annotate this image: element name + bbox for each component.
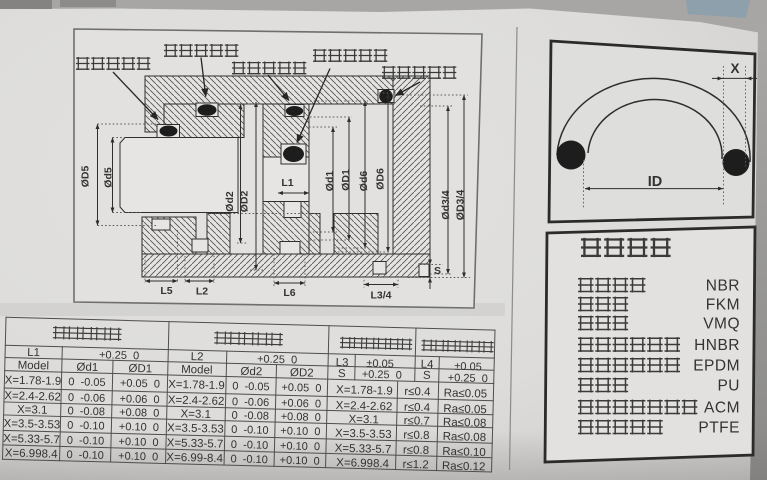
svg-text:0 -0.05: 0 -0.05 — [68, 376, 106, 389]
svg-text:L1: L1 — [27, 347, 40, 359]
svg-text:NBR: NBR — [706, 278, 740, 295]
svg-text:Ra≤0.05: Ra≤0.05 — [444, 387, 488, 400]
svg-text:PTFE: PTFE — [698, 420, 740, 437]
svg-text:r≤0.8: r≤0.8 — [403, 429, 429, 442]
svg-text:EPDM: EPDM — [693, 358, 740, 375]
svg-text:+0.06 0: +0.06 0 — [281, 397, 321, 410]
svg-text:r≤0.4: r≤0.4 — [404, 402, 431, 415]
svg-text:ØD2: ØD2 — [239, 191, 251, 213]
svg-text:X=6.998.4: X=6.998.4 — [336, 457, 390, 470]
svg-text:0 -0.06: 0 -0.06 — [232, 396, 270, 409]
svg-text:S: S — [423, 370, 431, 382]
svg-text:r≤0.7: r≤0.7 — [404, 415, 430, 428]
svg-text:ØD3/4: ØD3/4 — [455, 190, 467, 221]
svg-text:+0.05 0: +0.05 0 — [281, 382, 321, 395]
svg-text:0 -0.10: 0 -0.10 — [231, 439, 269, 452]
svg-text:0 -0.10: 0 -0.10 — [231, 424, 269, 437]
svg-text:X: X — [730, 61, 739, 76]
svg-text:X=1.78-1.9: X=1.78-1.9 — [5, 374, 62, 387]
svg-text:Ød2: Ød2 — [224, 191, 236, 212]
svg-text:Model: Model — [18, 360, 50, 373]
svg-text:0 -0.10: 0 -0.10 — [67, 420, 105, 433]
svg-text:X=3.5-3.53: X=3.5-3.53 — [167, 422, 224, 435]
svg-text:X=3.5-3.53: X=3.5-3.53 — [3, 418, 60, 431]
svg-text:HNBR: HNBR — [694, 337, 740, 354]
svg-text:X=6.998.4: X=6.998.4 — [5, 447, 59, 460]
svg-text:ACM: ACM — [704, 400, 740, 417]
svg-text:+0.08 0: +0.08 0 — [119, 407, 159, 420]
svg-text:Ød3/4: Ød3/4 — [440, 190, 452, 219]
svg-text:Model: Model — [181, 364, 213, 377]
svg-text:X=3.1: X=3.1 — [180, 408, 211, 421]
svg-text:X=2.4-2.62: X=2.4-2.62 — [4, 390, 61, 403]
svg-text:PU: PU — [717, 378, 740, 395]
svg-text:ØD6: ØD6 — [375, 168, 387, 190]
svg-text:X=1.78-1.9: X=1.78-1.9 — [168, 379, 225, 392]
svg-text:X=2.4-2.62: X=2.4-2.62 — [168, 394, 225, 407]
svg-text:0 -0.06: 0 -0.06 — [68, 392, 106, 405]
svg-text:0 -0.08: 0 -0.08 — [231, 410, 269, 423]
svg-text:ØD1: ØD1 — [340, 169, 352, 191]
svg-text:+0.06 0: +0.06 0 — [119, 393, 159, 406]
svg-text:+0.05 0: +0.05 0 — [120, 377, 160, 390]
svg-text:Ra≤0.05: Ra≤0.05 — [443, 403, 487, 416]
svg-text:Ra≤0.10: Ra≤0.10 — [442, 446, 486, 459]
svg-text:Ra≤0.12: Ra≤0.12 — [442, 460, 486, 473]
svg-text:S: S — [338, 368, 346, 380]
svg-text:L6: L6 — [283, 287, 295, 299]
svg-text:+0.10 0: +0.10 0 — [118, 436, 158, 449]
svg-text:S: S — [434, 265, 441, 277]
svg-text:X=1.78-1.9: X=1.78-1.9 — [336, 384, 393, 397]
svg-text:X=6.99-8.4: X=6.99-8.4 — [166, 452, 223, 465]
svg-text:+0.25 0: +0.25 0 — [99, 349, 139, 362]
svg-text:0 -0.10: 0 -0.10 — [66, 449, 104, 462]
svg-text:+0.08 0: +0.08 0 — [281, 411, 321, 424]
svg-text:L2: L2 — [191, 351, 204, 363]
svg-text:X=3.1: X=3.1 — [17, 404, 48, 417]
svg-text:+0.10 0: +0.10 0 — [119, 421, 159, 434]
svg-text:0 -0.05: 0 -0.05 — [232, 380, 270, 393]
svg-text:X=5.33-5.7: X=5.33-5.7 — [167, 437, 224, 450]
svg-text:+0.25 0: +0.25 0 — [257, 353, 297, 366]
svg-text:+0.10 0: +0.10 0 — [279, 455, 319, 468]
svg-text:L1: L1 — [281, 177, 293, 189]
svg-text:Ød2: Ød2 — [240, 366, 262, 379]
svg-text:0 -0.08: 0 -0.08 — [67, 405, 105, 418]
svg-text:0 -0.10: 0 -0.10 — [230, 453, 268, 466]
svg-text:L3/4: L3/4 — [370, 290, 391, 302]
svg-text:X=2.4-2.62: X=2.4-2.62 — [336, 400, 393, 413]
svg-text:Ød5: Ød5 — [103, 167, 115, 188]
svg-text:+0.25 0: +0.25 0 — [448, 372, 488, 385]
svg-text:r≤0.8: r≤0.8 — [403, 444, 429, 457]
svg-text:+0.10 0: +0.10 0 — [118, 450, 158, 463]
svg-text:X=3.1: X=3.1 — [348, 414, 379, 427]
svg-text:r≤1.2: r≤1.2 — [402, 459, 428, 472]
svg-text:ØD5: ØD5 — [80, 166, 92, 188]
svg-text:Ra≤0.08: Ra≤0.08 — [443, 417, 487, 430]
svg-text:L2: L2 — [196, 286, 208, 298]
svg-text:+0.25 0: +0.25 0 — [362, 369, 402, 382]
svg-text:ØD2: ØD2 — [290, 367, 314, 380]
svg-text:Ød6: Ød6 — [358, 171, 370, 192]
svg-text:Ød1: Ød1 — [324, 171, 336, 192]
svg-text:FKM: FKM — [706, 297, 740, 314]
svg-text:Ra≤0.08: Ra≤0.08 — [443, 431, 487, 444]
svg-text:VMQ: VMQ — [703, 316, 740, 333]
svg-text:r≤0.4: r≤0.4 — [404, 386, 431, 399]
svg-text:ØD1: ØD1 — [128, 363, 152, 376]
svg-text:+0.10 0: +0.10 0 — [280, 440, 320, 453]
svg-text:L5: L5 — [160, 285, 172, 297]
svg-text:Ød1: Ød1 — [76, 361, 98, 374]
svg-text:X=5.33-5.7: X=5.33-5.7 — [335, 443, 392, 456]
svg-text:+0.10 0: +0.10 0 — [280, 425, 320, 438]
svg-text:X=3.5-3.53: X=3.5-3.53 — [335, 428, 392, 441]
svg-text:0 -0.10: 0 -0.10 — [67, 435, 105, 448]
svg-text:ID: ID — [648, 174, 663, 190]
svg-text:X=5.33-5.7: X=5.33-5.7 — [3, 433, 60, 446]
